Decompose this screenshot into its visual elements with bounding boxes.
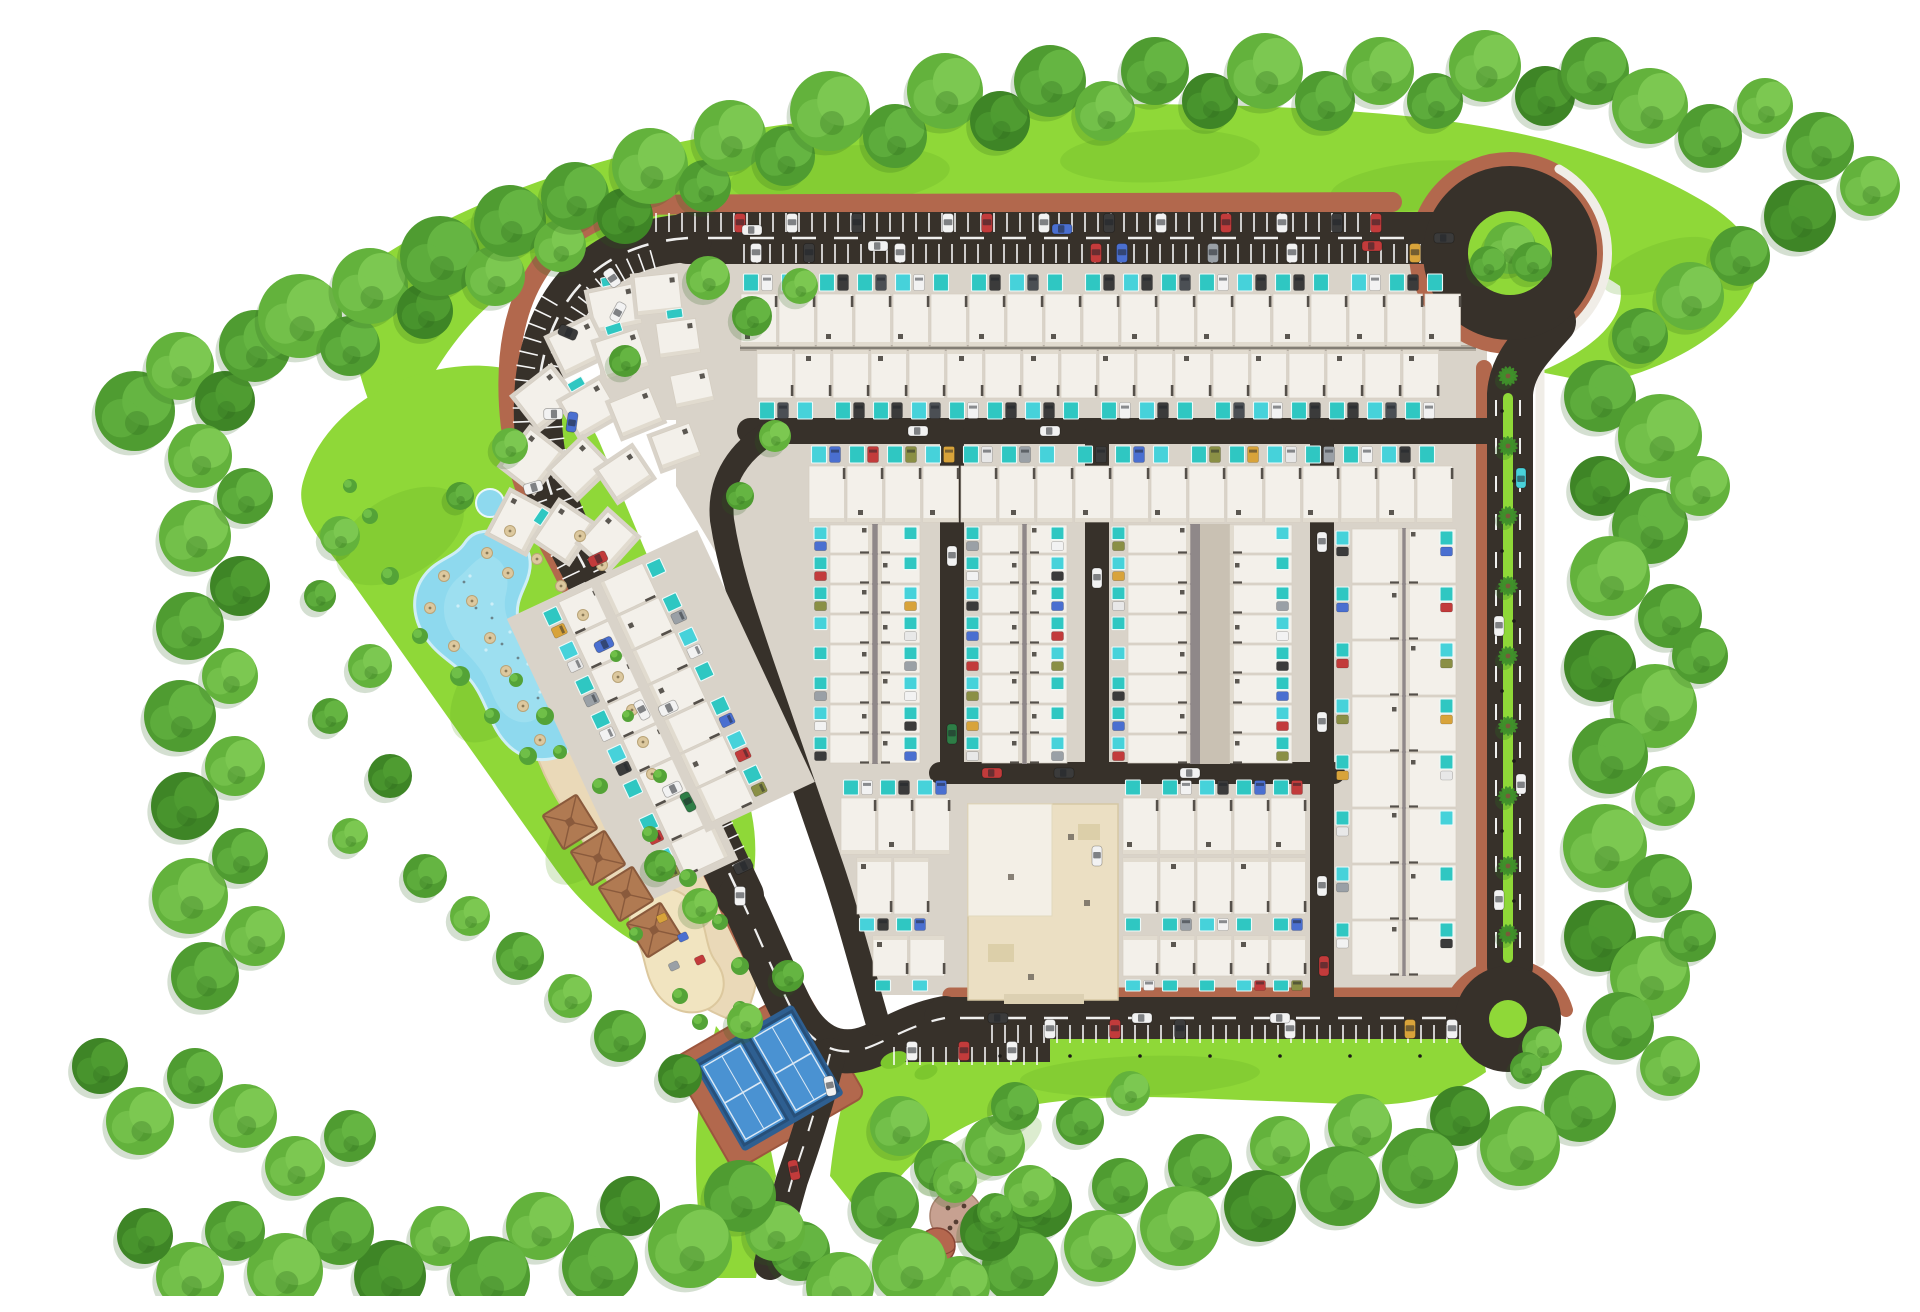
party-wall — [890, 901, 893, 912]
ac-unit — [862, 714, 867, 719]
car — [1332, 214, 1343, 233]
roof-shade — [878, 585, 882, 613]
house-roof — [982, 525, 1022, 553]
bush-highlight — [630, 928, 638, 936]
parked-car — [1441, 715, 1453, 724]
pool — [814, 707, 827, 720]
party-wall — [1231, 296, 1234, 307]
tree-canopy-dark — [361, 286, 384, 309]
car-glass — [1288, 249, 1297, 255]
car — [908, 426, 928, 436]
car — [895, 244, 906, 263]
house-roof — [1197, 936, 1232, 976]
parked-car — [1248, 447, 1259, 463]
car-glass — [960, 1047, 969, 1053]
palm-trunk — [1506, 864, 1511, 869]
tree-canopy-dark — [93, 1066, 110, 1083]
car-glass — [1029, 278, 1037, 281]
roof-shade — [841, 850, 876, 854]
pool — [1051, 647, 1064, 660]
pool — [904, 557, 917, 570]
car — [751, 244, 762, 263]
tree-canopy-dark — [1658, 796, 1676, 814]
car-glass — [893, 406, 901, 409]
parked-car — [830, 447, 841, 463]
roof-shade — [1197, 858, 1232, 862]
tree-canopy-dark — [771, 436, 781, 446]
house-roof — [1137, 350, 1173, 398]
roof-shade — [1197, 850, 1232, 854]
parked-car — [1020, 447, 1031, 463]
street-light — [1418, 1054, 1422, 1058]
pool — [760, 402, 775, 419]
house-roof — [1007, 294, 1043, 346]
car-glass — [874, 242, 880, 250]
car-glass — [1021, 450, 1029, 453]
pool — [1200, 918, 1215, 931]
car-glass — [948, 552, 956, 558]
roof-shade — [1018, 735, 1022, 763]
parked-car — [967, 662, 979, 671]
car — [1516, 468, 1526, 488]
party-wall — [1390, 861, 1399, 863]
parked-car — [1337, 883, 1349, 892]
car-glass — [1249, 450, 1257, 453]
roof-shade — [1186, 525, 1190, 553]
ac-unit — [1155, 510, 1160, 515]
party-wall — [981, 385, 984, 396]
roof-shade — [1160, 936, 1195, 940]
pool — [1040, 446, 1055, 463]
parked-car — [815, 542, 827, 551]
roof-shade — [1189, 518, 1225, 522]
house-roof — [969, 294, 1005, 346]
tree-canopy-dark — [433, 1236, 451, 1254]
pool — [1163, 780, 1178, 795]
parked-car — [1441, 939, 1453, 948]
ac-unit — [1392, 813, 1397, 818]
ac-unit — [625, 288, 631, 294]
tree-canopy-dark — [565, 996, 578, 1009]
roof-shade — [868, 675, 872, 703]
car — [1007, 1042, 1018, 1061]
parked-car — [778, 403, 789, 419]
pool — [1276, 707, 1289, 720]
car-glass — [1286, 1025, 1295, 1031]
roof-shade — [1387, 342, 1423, 346]
ac-unit — [1236, 510, 1241, 515]
ac-unit — [1235, 625, 1240, 630]
party-wall — [1147, 468, 1150, 479]
party-wall — [843, 468, 846, 479]
tree-canopy-dark — [457, 496, 465, 504]
ac-unit — [1032, 652, 1037, 657]
roof-shade — [1234, 936, 1269, 940]
house-roof — [1265, 466, 1301, 522]
roof-shade — [961, 518, 997, 522]
tree-canopy-dark — [1537, 1046, 1549, 1058]
car-glass — [805, 249, 814, 255]
roof-shade — [1398, 585, 1402, 639]
pool — [904, 677, 917, 690]
roof-shade — [868, 555, 872, 583]
car-glass — [1145, 982, 1153, 985]
parked-car — [762, 275, 773, 291]
parked-car — [1272, 403, 1283, 419]
ac-unit — [883, 679, 888, 684]
tree-canopy-dark — [1011, 1266, 1034, 1289]
pool — [1440, 923, 1453, 937]
car — [1319, 956, 1329, 976]
tree-canopy-dark — [1733, 256, 1751, 274]
party-wall — [1117, 296, 1120, 307]
ac-unit — [883, 563, 888, 568]
pool — [666, 308, 683, 319]
roof-shade — [1311, 342, 1347, 346]
pool — [814, 647, 827, 660]
car-glass — [1411, 249, 1420, 255]
roof-shade — [1121, 342, 1157, 346]
roof-shade — [1230, 675, 1234, 703]
bush-highlight — [510, 674, 518, 682]
party-wall — [881, 468, 884, 479]
pool — [1276, 527, 1289, 540]
clubhouse-roof-upper — [968, 804, 1052, 916]
parked-car — [899, 781, 910, 795]
car-glass — [1257, 278, 1265, 281]
house-roof — [915, 798, 950, 854]
parked-car — [1256, 275, 1267, 291]
roof-shade — [857, 858, 892, 862]
pool — [1440, 699, 1453, 713]
parked-car — [1277, 692, 1289, 701]
car-glass — [1318, 882, 1326, 888]
party-wall — [1178, 671, 1187, 673]
party-wall — [1361, 385, 1364, 396]
house-roof — [1023, 350, 1059, 398]
roof-shade — [1186, 675, 1190, 703]
roof-shade — [1160, 850, 1195, 854]
car-glass — [1143, 278, 1151, 281]
bush-highlight — [623, 711, 630, 718]
tree-canopy-dark — [623, 1206, 641, 1224]
parked-car — [906, 447, 917, 463]
pool — [1336, 587, 1349, 601]
pool — [1428, 274, 1443, 291]
party-wall — [881, 731, 890, 733]
pool — [1276, 587, 1289, 600]
roof-shade — [1123, 858, 1158, 862]
pool — [897, 918, 912, 931]
house-roof — [1160, 936, 1195, 976]
pool — [1192, 446, 1207, 463]
parked-car — [1337, 603, 1349, 612]
tree-canopy-dark — [532, 1226, 552, 1246]
roof-shade — [1265, 518, 1301, 522]
roof-shade — [1303, 518, 1339, 522]
ac-unit — [1012, 625, 1017, 630]
car — [1494, 616, 1504, 636]
tree-canopy-dark — [991, 1211, 1002, 1222]
roof-shade — [1018, 705, 1022, 733]
roof-shade — [910, 936, 945, 940]
house-roof — [1271, 936, 1306, 976]
car — [1317, 876, 1327, 896]
parked-car — [905, 632, 917, 641]
bush-highlight — [485, 709, 494, 718]
roof-shade — [1365, 350, 1401, 354]
roof-shade — [1027, 585, 1031, 613]
car — [742, 225, 762, 235]
pool — [836, 402, 851, 419]
car-glass — [863, 783, 871, 786]
bush-highlight — [693, 1015, 702, 1024]
tree-canopy-dark — [1640, 976, 1664, 1000]
pool — [1200, 980, 1215, 991]
car — [1052, 224, 1072, 234]
parked-car — [1113, 692, 1125, 701]
house-roof — [795, 350, 831, 398]
house-roof — [878, 798, 913, 854]
tree-canopy-dark — [950, 1181, 963, 1194]
house-roof — [1128, 585, 1190, 613]
pool — [1162, 274, 1177, 291]
pool — [1330, 402, 1345, 419]
dome-window — [954, 1220, 959, 1225]
roof-shade — [1406, 697, 1410, 751]
roof-shade — [1417, 518, 1453, 522]
roof-shade — [1027, 705, 1031, 733]
ac-unit — [669, 277, 674, 282]
party-wall — [943, 385, 946, 396]
roof-shade — [1235, 342, 1271, 346]
car — [1516, 774, 1526, 794]
parked-car — [1324, 447, 1335, 463]
roof-shade — [1023, 350, 1059, 354]
party-wall — [1193, 901, 1196, 912]
street-light — [1500, 409, 1504, 413]
clubhouse-steps — [1004, 994, 1084, 1004]
tree-canopy-dark — [1633, 336, 1650, 353]
house-roof — [1352, 529, 1402, 583]
tree-canopy-dark — [1758, 106, 1775, 123]
car-glass — [1293, 920, 1301, 923]
bush-highlight — [344, 480, 352, 488]
pool — [904, 527, 917, 540]
tree-canopy-dark — [1593, 486, 1611, 504]
ac-unit — [1132, 334, 1137, 339]
party-wall — [1095, 385, 1098, 396]
party-wall — [1230, 901, 1233, 912]
ac-unit — [1012, 679, 1017, 684]
car-glass — [1092, 249, 1101, 255]
roof-shade — [1186, 585, 1190, 613]
roof-shade — [1027, 525, 1031, 553]
tree-canopy-dark — [246, 346, 268, 368]
pool — [744, 274, 759, 291]
party-wall — [1233, 581, 1242, 583]
pool — [1336, 699, 1349, 713]
parked-car — [1052, 662, 1064, 671]
house-roof — [1352, 753, 1402, 807]
tree-canopy-dark — [1024, 1191, 1040, 1207]
car-glass — [1293, 783, 1301, 786]
ac-unit — [687, 323, 693, 329]
car-glass — [736, 892, 745, 898]
party-wall — [1030, 761, 1039, 763]
ac-unit — [858, 510, 863, 515]
tree-canopy-dark — [1273, 1146, 1291, 1164]
pool — [1336, 811, 1349, 825]
party-wall — [1304, 901, 1307, 912]
car — [1371, 214, 1382, 233]
parked-car — [1180, 275, 1191, 291]
tree-canopy-dark — [228, 766, 246, 784]
pool — [1051, 677, 1064, 690]
tree-canopy-dark — [618, 216, 635, 233]
party-wall — [881, 641, 890, 643]
bush-highlight — [611, 651, 618, 658]
parked-car — [967, 722, 979, 731]
swimmer — [517, 657, 520, 660]
tree-canopy-dark — [778, 156, 796, 174]
tree-canopy-dark — [1428, 101, 1445, 118]
tree-canopy-dark — [703, 278, 716, 291]
parked-car — [815, 572, 827, 581]
car-glass — [1256, 982, 1264, 985]
umbrella-pole — [522, 705, 525, 708]
party-wall — [1409, 861, 1418, 863]
pool — [1163, 918, 1178, 931]
car — [1045, 1020, 1056, 1039]
parked-car — [1310, 403, 1321, 419]
house-roof — [855, 294, 891, 346]
roof-shade — [1018, 645, 1022, 673]
parked-car — [1277, 602, 1289, 611]
car — [1110, 1020, 1121, 1039]
roof-shade — [1197, 936, 1232, 940]
house-roof — [1403, 350, 1439, 398]
car — [1317, 532, 1327, 552]
pool — [1440, 867, 1453, 881]
tree-canopy-dark — [567, 196, 587, 216]
party-wall — [1030, 731, 1039, 733]
party-wall — [1178, 551, 1187, 553]
party-wall — [1409, 973, 1418, 975]
street-light — [1512, 479, 1516, 483]
pool — [814, 527, 827, 540]
tree-canopy-dark — [1652, 886, 1671, 905]
palm-trunk — [1506, 374, 1511, 379]
pool — [1026, 402, 1041, 419]
party-wall — [1010, 581, 1019, 583]
roof-shade — [1227, 518, 1263, 522]
house-roof — [1352, 641, 1402, 695]
gap-shadow — [1190, 524, 1200, 764]
car-glass — [1105, 278, 1113, 281]
ac-unit — [1127, 842, 1132, 847]
tree-canopy-dark — [1538, 96, 1556, 114]
car-glass — [1118, 249, 1127, 255]
parked-car — [1158, 403, 1169, 419]
pool — [950, 402, 965, 419]
car-glass — [1295, 278, 1303, 281]
tree-canopy-dark — [554, 246, 570, 262]
pool — [1390, 274, 1405, 291]
ac-unit — [1392, 927, 1397, 932]
house-roof — [1121, 294, 1157, 346]
ac-unit — [1389, 510, 1394, 515]
roof-shade — [1403, 350, 1439, 354]
tree-canopy-dark — [1251, 1206, 1273, 1228]
tree-canopy-dark — [332, 1231, 352, 1251]
car-glass — [1368, 242, 1374, 250]
roof-shade — [915, 850, 950, 854]
tree-canopy-dark — [1318, 101, 1336, 119]
party-wall — [1390, 581, 1399, 583]
pool — [904, 737, 917, 750]
car — [1317, 712, 1327, 732]
gap-shadow — [1402, 528, 1406, 976]
house-roof — [1234, 858, 1269, 914]
parked-car — [1142, 275, 1153, 291]
house-roof — [931, 294, 967, 346]
umbrella-pole — [509, 530, 512, 533]
house-roof — [830, 585, 872, 613]
party-wall — [1193, 296, 1196, 307]
party-wall — [1230, 963, 1233, 974]
dome-window — [962, 1204, 967, 1209]
tree-canopy-dark — [233, 586, 251, 604]
party-wall — [1304, 800, 1307, 811]
party-wall — [1030, 581, 1039, 583]
roof-shade — [969, 342, 1005, 346]
roof-shade — [1251, 350, 1287, 354]
parked-car — [1113, 602, 1125, 611]
street-light — [1512, 899, 1516, 903]
party-wall — [1010, 761, 1019, 763]
tree-canopy-dark — [316, 596, 326, 606]
party-wall — [1409, 693, 1418, 695]
pool — [1276, 617, 1289, 630]
umbrella-pole — [560, 585, 563, 588]
party-wall — [1230, 800, 1233, 811]
roof-shade — [1186, 555, 1190, 583]
ac-unit — [1241, 942, 1246, 947]
party-wall — [881, 611, 890, 613]
tree-canopy-dark — [1113, 1186, 1130, 1203]
site-plan-render: Aerial 3D master-plan rendering of a gat… — [40, 16, 1920, 1296]
house-roof — [982, 735, 1022, 763]
pool — [1276, 647, 1289, 660]
house-roof — [982, 645, 1022, 673]
party-wall — [1156, 963, 1159, 974]
bush-highlight — [680, 870, 690, 880]
umbrella-pole — [642, 741, 645, 744]
car — [1434, 233, 1454, 243]
ac-unit — [1411, 760, 1416, 765]
parked-car — [1255, 781, 1266, 795]
tree-canopy-dark — [820, 111, 844, 135]
car-glass — [1401, 450, 1409, 453]
car-glass — [1425, 406, 1433, 409]
roof-shade — [1018, 555, 1022, 583]
ac-unit — [1032, 528, 1037, 533]
ac-unit — [1180, 714, 1185, 719]
car-glass — [948, 730, 956, 736]
roof-shade — [1160, 858, 1195, 862]
party-wall — [1178, 641, 1187, 643]
